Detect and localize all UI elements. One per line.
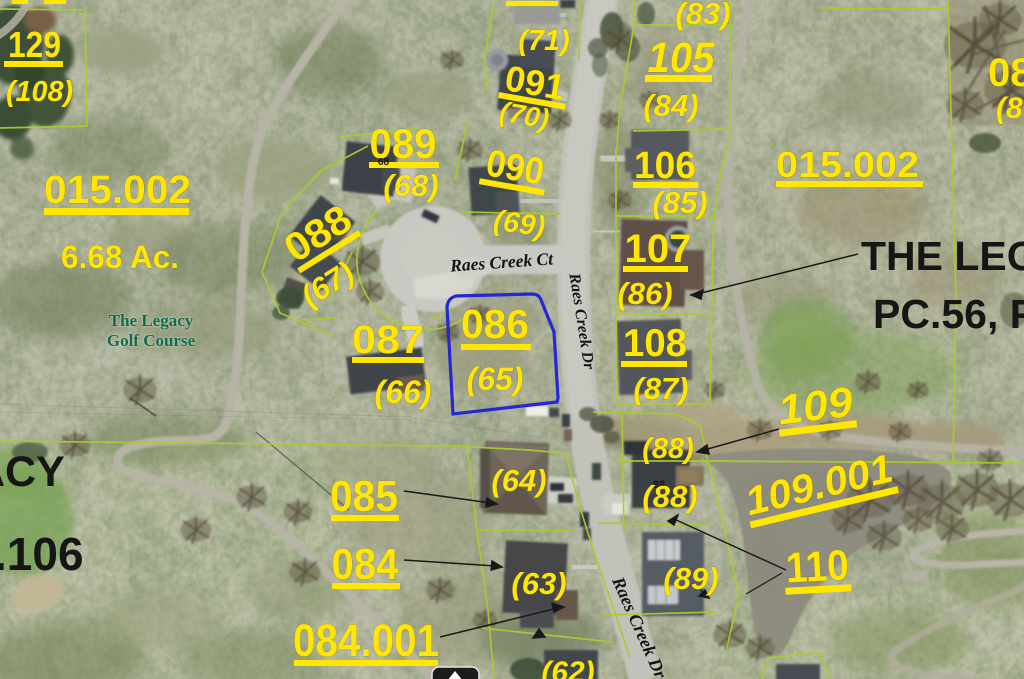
svg-text:(65): (65) (467, 361, 524, 397)
svg-text:PC.56, PG: PC.56, PG (873, 291, 1024, 337)
svg-text:08: 08 (988, 51, 1024, 95)
svg-text:084: 084 (332, 540, 399, 589)
svg-text:(85): (85) (652, 185, 707, 220)
svg-text:015.002: 015.002 (44, 168, 191, 212)
svg-text:(71): (71) (518, 25, 570, 57)
svg-text:106: 106 (634, 145, 696, 187)
svg-text:084.001: 084.001 (293, 615, 439, 666)
svg-text:.106: .106 (0, 528, 84, 580)
svg-text:(86): (86) (617, 276, 672, 311)
svg-text:(83): (83) (675, 0, 730, 31)
svg-text:(63): (63) (511, 566, 566, 601)
svg-text:(108): (108) (6, 76, 73, 108)
svg-text:(88): (88) (642, 433, 694, 465)
svg-text:015.002: 015.002 (776, 144, 919, 185)
svg-text:107: 107 (625, 227, 692, 271)
svg-text:The Legacy: The Legacy (109, 311, 194, 330)
svg-text:(88): (88) (642, 479, 697, 514)
svg-text:(8: (8 (996, 92, 1023, 125)
svg-text:ACY: ACY (0, 448, 65, 496)
svg-text:(64): (64) (491, 463, 546, 498)
svg-text:087: 087 (352, 318, 424, 362)
svg-text:105: 105 (648, 34, 716, 82)
svg-text:(68): (68) (383, 168, 438, 203)
svg-text:Golf Course: Golf Course (107, 331, 196, 350)
svg-text:(66): (66) (375, 374, 432, 410)
svg-text:(62): (62) (541, 656, 594, 679)
svg-text:(89): (89) (663, 561, 718, 596)
svg-text:129: 129 (8, 24, 61, 65)
svg-text:(84): (84) (643, 88, 698, 123)
svg-text:085: 085 (330, 472, 398, 521)
svg-text:(87): (87) (633, 371, 688, 406)
svg-text:108: 108 (623, 322, 687, 365)
svg-text:68: 68 (378, 157, 390, 168)
svg-text:THE LEGACY: THE LEGACY (861, 233, 1024, 279)
svg-text:086: 086 (461, 301, 529, 347)
svg-text:6.68 Ac.: 6.68 Ac. (61, 239, 179, 275)
